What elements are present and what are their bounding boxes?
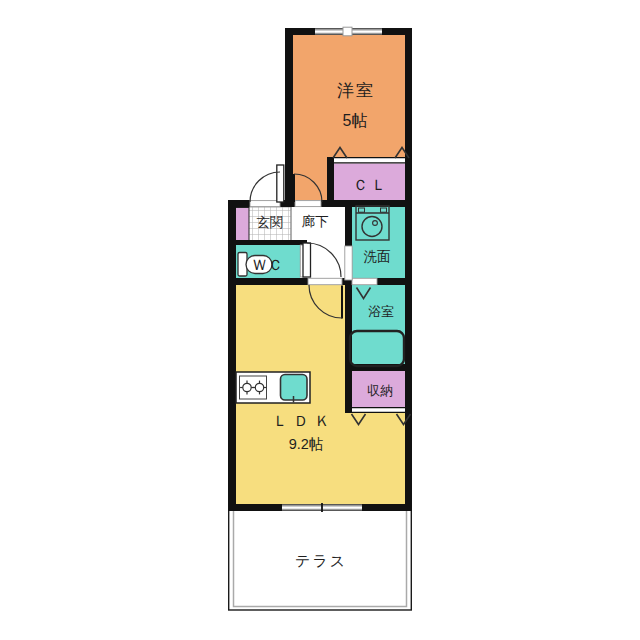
entrance-door-swing <box>250 165 284 202</box>
room-label-hallway: 廊下 <box>302 215 329 229</box>
room-label-bedroom: 洋室 <box>337 82 375 99</box>
room-label-ldk: ＬＤＫ <box>273 413 336 428</box>
room-label-entrance: 玄関 <box>257 216 284 230</box>
ldk-floor-east <box>345 413 405 504</box>
room-label-closet: ＣＬ <box>353 177 389 192</box>
bathroom-floor <box>352 285 405 364</box>
room-label-terrace: テラス <box>295 553 347 568</box>
storage-door-track <box>352 407 405 413</box>
washroom-floor <box>352 207 405 278</box>
bathroom-door-opening <box>352 278 377 284</box>
washroom-door-opening <box>345 246 352 280</box>
room-size-bedroom: 5帖 <box>343 113 368 129</box>
entrance-door-opening <box>250 201 280 207</box>
room-label-toilet: ＷＣ <box>252 257 284 272</box>
floor-plan-drawing <box>0 0 640 640</box>
room-size-ldk: 9.2帖 <box>289 437 324 452</box>
room-label-washroom: 洗面 <box>364 250 391 264</box>
room-label-bathroom: 浴室 <box>368 305 394 318</box>
toilet-door-swing <box>303 243 341 277</box>
kitchen-counter <box>236 372 310 403</box>
bedroom-door-opening <box>295 201 321 207</box>
ldk-door-opening <box>308 278 342 284</box>
closet-door-track <box>334 157 405 164</box>
floor-plan: 洋室 5帖 ＣＬ 玄関 廊下 洗面 ＷＣ 浴室 収納 ＬＤＫ 9.2帖 テラス <box>0 0 640 640</box>
shoe-cabinet <box>235 208 249 241</box>
room-label-storage: 収納 <box>367 384 393 397</box>
